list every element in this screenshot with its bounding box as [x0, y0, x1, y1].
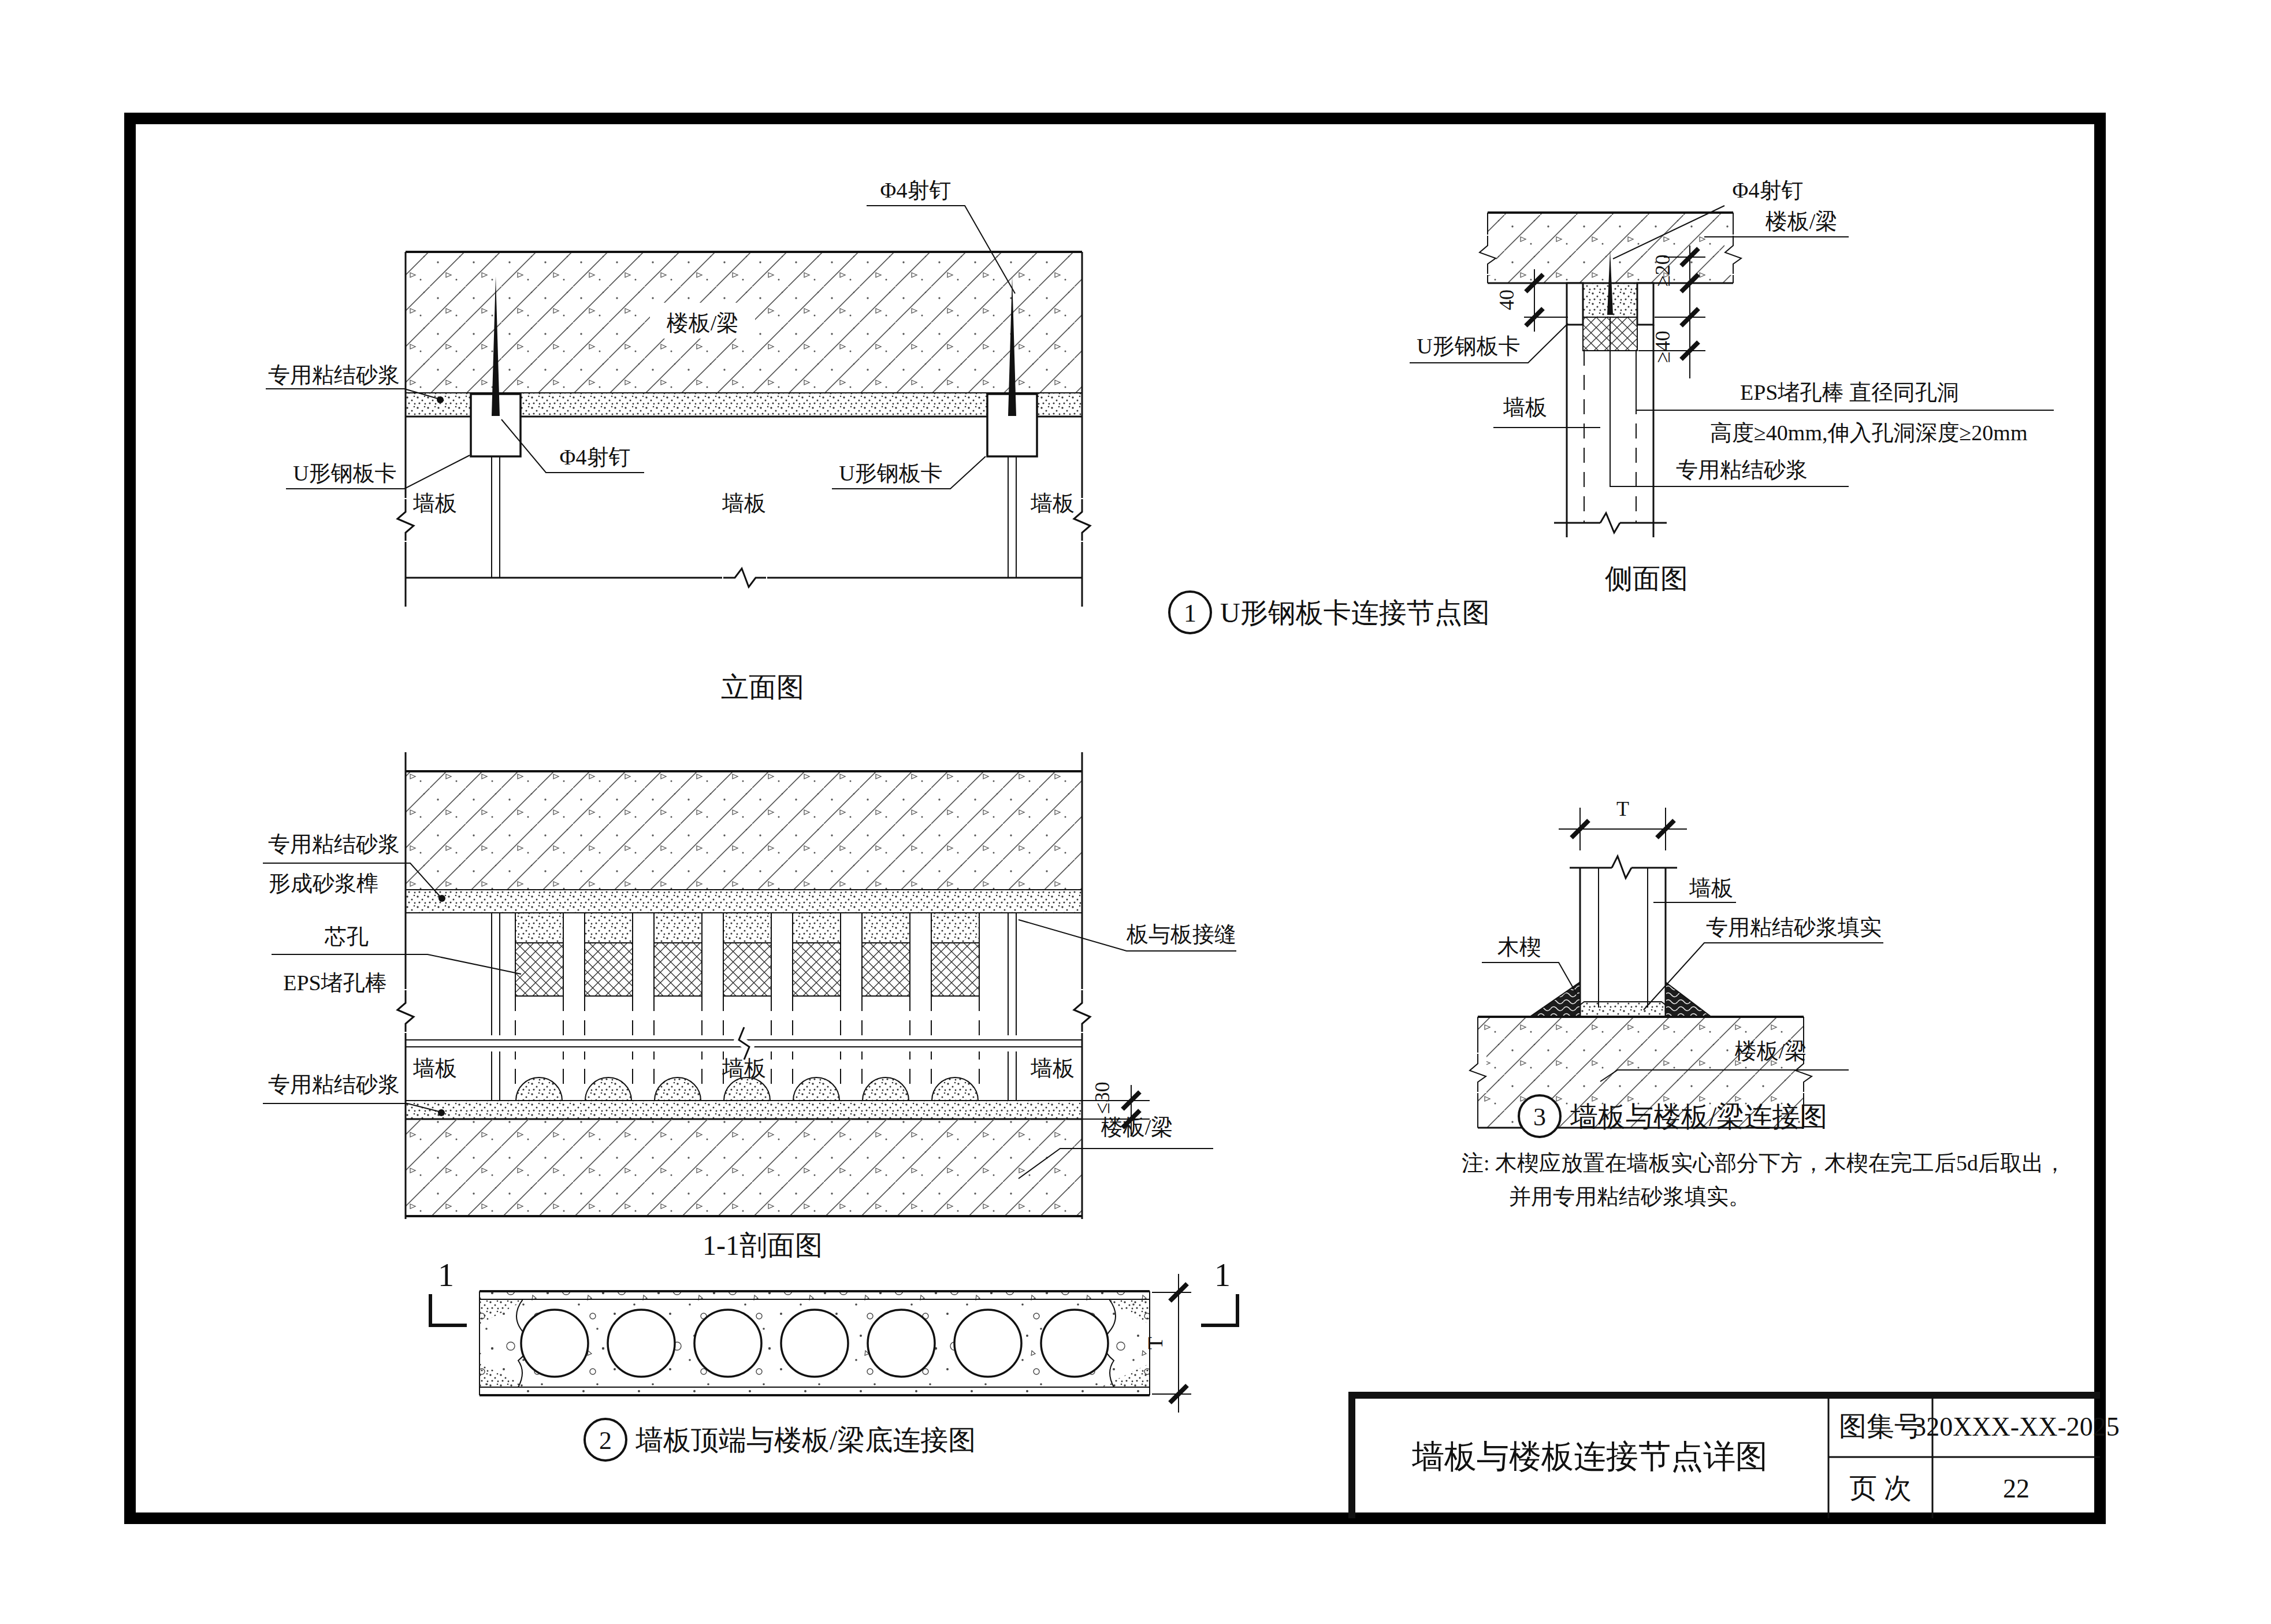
side-dim-40: 40 — [1495, 289, 1518, 310]
section-core-label-2: EPS堵孔棒 — [283, 971, 386, 995]
elevation-nail-mid-label: Φ4射钉 — [560, 445, 631, 469]
d3-slab-label: 楼板/梁 — [1735, 1039, 1807, 1063]
section-mortar-bottom-label: 专用粘结砂浆 — [268, 1072, 400, 1097]
section-top-slab — [406, 771, 1082, 890]
detail3-note-line1: 注: 木楔应放置在墙板实心部分下方，木楔在完工后5d后取出， — [1462, 1151, 2066, 1175]
atlas-number-label: 图集号 — [1839, 1411, 1922, 1441]
break-icon — [396, 498, 415, 542]
atlas-number-value: 320XXX-XX-2025 — [1913, 1412, 2120, 1441]
d3-wedge-right — [1666, 982, 1711, 1017]
d3-wall-label: 墙板 — [1689, 876, 1733, 900]
side-clip-leg-right — [1637, 283, 1653, 325]
title-block: 墙板与楼板连接节点详图 图集号 320XXX-XX-2025 页 次 22 — [1352, 1392, 2120, 1518]
section-marker-icon — [430, 1294, 467, 1325]
break-icon — [1073, 989, 1091, 1033]
section-core-label-1: 芯孔 — [324, 924, 369, 949]
side-eps-label-2: 高度≥40mm,伸入孔洞深度≥20mm — [1710, 421, 2027, 445]
plan-caption: 墙板顶端与楼板/梁底连接图 — [635, 1425, 976, 1455]
section-wall-center-label: 墙板 — [722, 1056, 766, 1080]
elevation-mortar-label: 专用粘结砂浆 — [268, 363, 400, 387]
detail3-number: 3 — [1533, 1103, 1546, 1131]
side-uclip-label: U形钢板卡 — [1417, 334, 1520, 358]
side-view-diagram: 40 ≥20 ≥40 Φ4射钉 楼板/梁 U形钢板卡 墙板 EPS堵孔棒 直径同… — [1410, 178, 2054, 594]
section-mortar-band — [406, 890, 1082, 913]
leader-line — [1482, 962, 1577, 995]
detail1-number: 1 — [1184, 599, 1196, 627]
d3-mortar-fill-label: 专用粘结砂浆填实 — [1706, 915, 1882, 939]
section-marker-icon — [1201, 1294, 1237, 1325]
elevation-nail-top-label: Φ4射钉 — [880, 178, 951, 202]
sheet-title: 墙板与楼板连接节点详图 — [1411, 1439, 1768, 1474]
side-dim-ge40: ≥40 — [1651, 330, 1674, 363]
plan-dim-t: T — [1144, 1337, 1167, 1350]
plan-section-marker-right: 1 — [1214, 1257, 1231, 1293]
break-icon — [1570, 856, 1677, 878]
side-nail-label: Φ4射钉 — [1733, 178, 1804, 202]
side-dim-ge20: ≥20 — [1651, 254, 1674, 287]
section-slab-bottom-label: 楼板/梁 — [1101, 1115, 1173, 1139]
section-wall-left-label: 墙板 — [412, 1056, 457, 1080]
leader-dot — [438, 1109, 445, 1116]
elevation-diagram: 楼板/梁 墙板 墙板 墙板 专用粘结砂浆 U形钢板卡 Φ4射钉 Φ4射钉 U形钢… — [266, 178, 1091, 703]
break-icon — [1073, 498, 1091, 542]
leader-dot — [438, 895, 445, 902]
side-mortar-label: 专用粘结砂浆 — [1676, 458, 1808, 482]
break-icon — [1469, 1053, 1486, 1093]
section-caption: 1-1剖面图 — [703, 1230, 823, 1261]
detail3-diagram: T 墙板 专用粘结砂浆填实 木楔 楼板/梁 3 墙板与楼板/梁连接图 注: 木楔… — [1462, 797, 2066, 1209]
side-eps-label-1: EPS堵孔棒 直径同孔洞 — [1740, 380, 1959, 404]
section-bottom-mortar — [406, 1077, 1082, 1119]
side-wall-label: 墙板 — [1503, 395, 1547, 419]
elevation-uclip-right-label: U形钢板卡 — [839, 461, 942, 485]
section-1-1-diagram: 墙板 墙板 墙板 专用粘结砂浆 形成砂浆榫 芯孔 EPS堵孔棒 专用粘结砂浆 板… — [263, 752, 1236, 1261]
page-number-value: 22 — [2003, 1474, 2030, 1503]
drawing-canvas: 楼板/梁 墙板 墙板 墙板 专用粘结砂浆 U形钢板卡 Φ4射钉 Φ4射钉 U形钢… — [0, 0, 2271, 1624]
section-wall-right-label: 墙板 — [1030, 1056, 1075, 1080]
elevation-caption: 立面图 — [721, 672, 804, 703]
break-icon — [1554, 513, 1667, 533]
d3-mortar-bed — [1564, 1002, 1681, 1017]
detail3-caption: 墙板与楼板/梁连接图 — [1570, 1101, 1827, 1132]
plan-number: 2 — [599, 1426, 612, 1455]
section-mortar-label-1: 专用粘结砂浆 — [268, 832, 400, 856]
elevation-wall-center-label: 墙板 — [722, 491, 766, 515]
elevation-slab-label: 楼板/梁 — [667, 311, 739, 335]
detail3-note-line2: 并用专用粘结砂浆填实。 — [1509, 1184, 1750, 1209]
plan-diagram: 1 1 T 2 墙板顶端与楼板/梁底连接图 — [430, 1257, 1237, 1461]
detail1-caption: 1 U形钢板卡连接节点图 — [1169, 592, 1490, 633]
section-bottom-slab — [406, 1119, 1082, 1216]
break-icon — [722, 568, 767, 588]
break-icon — [1479, 235, 1496, 275]
detail1-caption-text: U形钢板卡连接节点图 — [1220, 597, 1490, 628]
elevation-wall-right-label: 墙板 — [1030, 491, 1075, 515]
break-icon — [396, 989, 415, 1033]
break-icon — [1724, 235, 1742, 275]
section-mid-break — [406, 1027, 1082, 1060]
leader-dot — [437, 396, 444, 403]
page-number-label: 页 次 — [1849, 1473, 1912, 1503]
elevation-wall-left-label: 墙板 — [412, 491, 457, 515]
plan-section-marker-left: 1 — [438, 1257, 454, 1293]
side-clip-leg-left — [1567, 283, 1583, 325]
elevation-uclip-left-label: U形钢板卡 — [293, 461, 396, 485]
side-caption: 侧面图 — [1605, 563, 1688, 594]
side-slab-label: 楼板/梁 — [1765, 209, 1838, 233]
section-dim-le30: ≤30 — [1091, 1082, 1114, 1114]
drawing-sheet: 楼板/梁 墙板 墙板 墙板 专用粘结砂浆 U形钢板卡 Φ4射钉 Φ4射钉 U形钢… — [0, 0, 2271, 1624]
detail3-dim-t: T — [1616, 797, 1629, 820]
section-mortar-label-2: 形成砂浆榫 — [269, 871, 378, 895]
section-joint-label: 板与板接缝 — [1126, 922, 1236, 946]
d3-wedge-label: 木楔 — [1497, 935, 1541, 959]
